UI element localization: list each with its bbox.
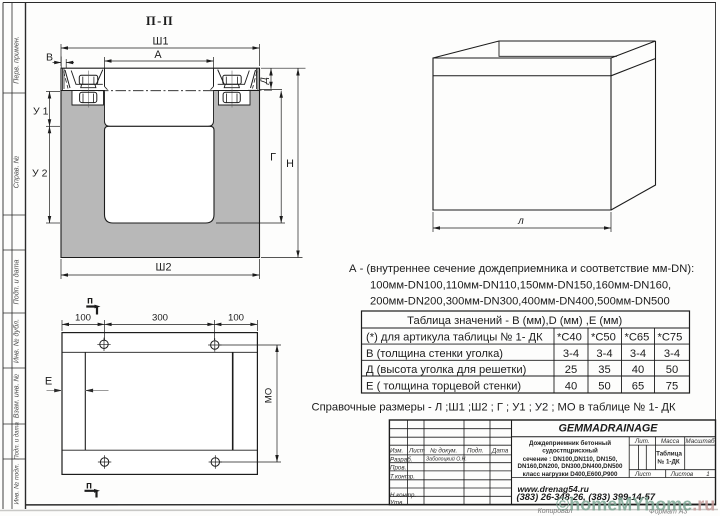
svg-text:Таблица: Таблица <box>656 451 682 458</box>
svg-text:Г: Г <box>270 152 276 164</box>
svg-text:3-4: 3-4 <box>596 348 612 360</box>
svg-text:50: 50 <box>666 364 678 376</box>
svg-text:Е: Е <box>45 376 52 388</box>
svg-text:300: 300 <box>152 313 168 324</box>
svg-text:50: 50 <box>598 381 610 393</box>
svg-text:Т.контр.: Т.контр. <box>390 473 415 480</box>
svg-text:Лист: Лист <box>408 448 425 455</box>
svg-text:П-П: П-П <box>146 14 174 28</box>
svg-text:1: 1 <box>706 471 709 478</box>
svg-text:Справочные размеры - Л ;Ш1 ;Ш: Справочные размеры - Л ;Ш1 ;Ш2 ; Г ; У1 … <box>312 402 676 414</box>
svg-text:Дождеприемник бетонный: Дождеприемник бетонный <box>529 440 611 447</box>
svg-text:Масштаб: Масштаб <box>686 438 715 445</box>
svg-text:Пров.: Пров. <box>390 465 406 472</box>
svg-text:А - (внутреннее сечение дожде: А - (внутреннее сечение дождеприемника и… <box>349 263 694 275</box>
svg-text:40: 40 <box>565 381 577 393</box>
svg-text:(*) для артикула таблицы № 1-: (*) для артикула таблицы № 1- ДК <box>366 332 543 344</box>
svg-text:Д: Д <box>259 77 270 85</box>
svg-text:класс нагрузки D400,E600,Р900: класс нагрузки D400,E600,Р900 <box>523 471 618 478</box>
svg-text:МО: МО <box>264 388 275 403</box>
svg-text:А: А <box>154 49 162 61</box>
svg-text:Перв. примен.: Перв. примен. <box>12 36 21 84</box>
svg-text:DN160,DN200, DN300,DN400,DN500: DN160,DN200, DN300,DN400,DN500 <box>518 463 623 470</box>
svg-text:сечение : DN100,DN110, DN150,: сечение : DN100,DN110, DN150, <box>523 456 618 463</box>
svg-text:Справ. №: Справ. № <box>12 155 21 188</box>
svg-text:Масса: Масса <box>661 438 680 445</box>
svg-text:35: 35 <box>598 364 610 376</box>
svg-text:Взам. инв. №: Взам. инв. № <box>12 374 21 419</box>
svg-text:65: 65 <box>632 381 644 393</box>
svg-text:Листов: Листов <box>670 471 694 478</box>
svg-text:В: В <box>46 52 53 64</box>
svg-text:25: 25 <box>565 364 577 376</box>
svg-text:Лит.: Лит. <box>634 438 650 445</box>
svg-text:200мм-DN200,300мм-DN300,400мм-: 200мм-DN200,300мм-DN300,400мм-DN400,500м… <box>370 296 670 308</box>
svg-text:Ш1: Ш1 <box>153 36 169 48</box>
svg-text:Подп. и дата: Подп. и дата <box>15 422 21 460</box>
svg-text:Утв.: Утв. <box>389 499 404 506</box>
svg-text:3-4: 3-4 <box>630 348 646 360</box>
svg-text:Таблица значений - В (мм),D (м: Таблица значений - В (мм),D (мм) ,Е (мм) <box>407 315 622 327</box>
svg-text:*С40: *С40 <box>557 332 582 344</box>
svg-text:*С50: *С50 <box>591 332 616 344</box>
svg-text:75: 75 <box>666 381 678 393</box>
svg-text:Н.контр.: Н.контр. <box>390 492 416 499</box>
svg-text:Подп. и дата: Подп. и дата <box>12 260 21 305</box>
svg-text:Д (высота уголка для решетки): Д (высота уголка для решетки) <box>366 364 527 376</box>
svg-text:У 2: У 2 <box>32 168 48 180</box>
svg-text:3-4: 3-4 <box>664 348 680 360</box>
svg-text:Изм.: Изм. <box>390 448 403 455</box>
svg-text:3-4: 3-4 <box>563 348 579 360</box>
svg-text:Е ( толщина торцевой стенки): Е ( толщина торцевой стенки) <box>366 381 521 393</box>
svg-text:100: 100 <box>228 313 244 324</box>
svg-text:Инв. № дубл.: Инв. № дубл. <box>12 319 21 363</box>
svg-text:л: л <box>517 216 524 227</box>
svg-text:Ш2: Ш2 <box>156 262 172 274</box>
svg-text:Лист: Лист <box>634 471 651 478</box>
svg-text:*С75: *С75 <box>658 332 683 344</box>
svg-text:Разраб.: Разраб. <box>390 456 412 463</box>
svg-text:Заболоцкий О.Н.: Заболоцкий О.Н. <box>426 455 467 462</box>
svg-text:судостпцрисхный: судостпцрисхный <box>542 447 598 454</box>
svg-text:№ докум.: № докум. <box>430 448 457 455</box>
svg-text:*С65: *С65 <box>625 332 650 344</box>
svg-text:В (толщина стенки уголка): В (толщина стенки уголка) <box>366 348 503 360</box>
svg-text:Инв. № подл.: Инв. № подл. <box>13 463 21 504</box>
svg-text:GEMMADRAINAGE: GEMMADRAINAGE <box>559 423 659 435</box>
svg-text:100мм-DN100,110мм-DN110,150мм-: 100мм-DN100,110мм-DN110,150мм-DN150,160м… <box>370 280 671 292</box>
svg-text:Дата: Дата <box>491 448 509 455</box>
svg-text:Подп.: Подп. <box>467 448 483 455</box>
svg-text:п: п <box>87 296 93 307</box>
svg-text:40: 40 <box>632 364 644 376</box>
svg-text:©homeMYhome.ru: ©homeMYhome.ru <box>556 494 715 514</box>
svg-text:100: 100 <box>75 313 91 324</box>
svg-text:У 1: У 1 <box>33 106 49 118</box>
svg-text:№ 1-ДК: № 1-ДК <box>657 459 680 466</box>
svg-text:Н: Н <box>286 158 294 170</box>
